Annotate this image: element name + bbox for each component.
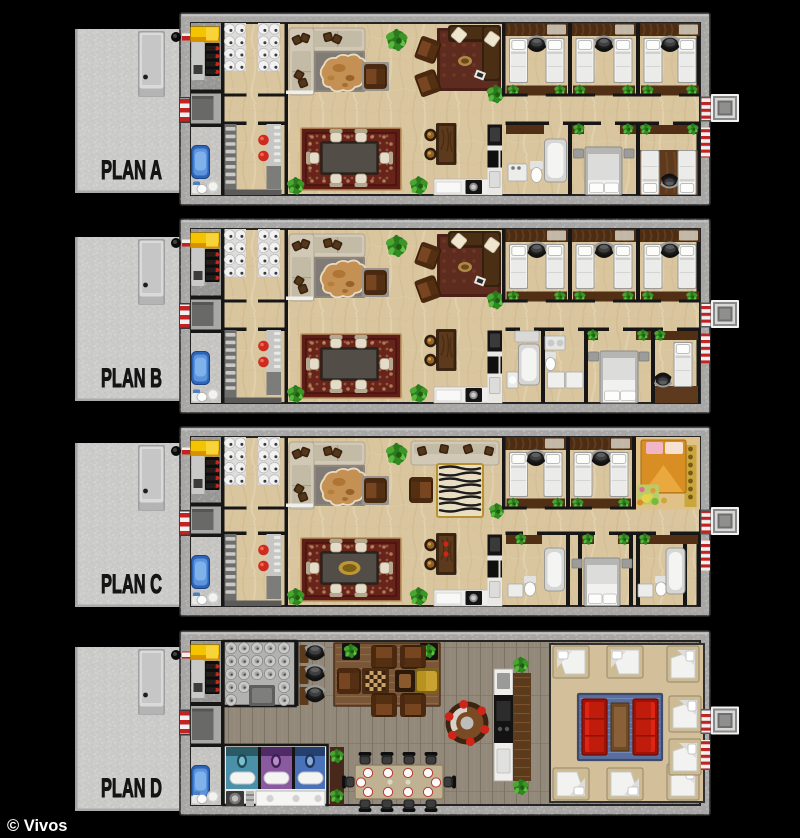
svg-text:PLAN A: PLAN A: [101, 155, 162, 185]
svg-text:PLAN B: PLAN B: [101, 363, 162, 393]
svg-text:© Vivos: © Vivos: [7, 817, 67, 835]
svg-text:PLAN D: PLAN D: [101, 773, 162, 803]
svg-text:PLAN C: PLAN C: [101, 569, 162, 599]
